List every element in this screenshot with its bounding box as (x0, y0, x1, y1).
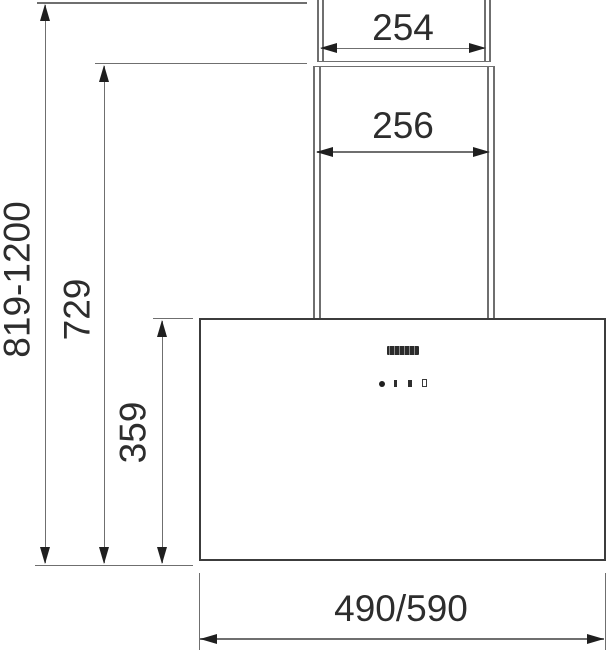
dim-line-body-height (162, 321, 164, 563)
arrowhead-254-left-icon (320, 43, 337, 53)
speed-3-button-icon (422, 379, 427, 387)
power-dot-button-icon (379, 381, 385, 387)
chimney-lower-right-outer-line (493, 66, 495, 319)
dim-line-254 (321, 48, 485, 50)
ext-line-chimney-joint (95, 63, 307, 65)
chimney-upper-right-outer-line (489, 0, 491, 62)
ext-line-body-top (153, 318, 193, 320)
arrowhead-overall-height-bottom-icon (40, 547, 50, 564)
ext-line-body-bottom (35, 565, 193, 567)
arrowhead-body-height-bottom-icon (157, 547, 167, 564)
arrowhead-256-left-icon (316, 147, 333, 157)
dim-line-overall-height (45, 5, 47, 563)
dim-label-254: 254 (363, 9, 443, 46)
dim-label-490-590: 490/590 (301, 590, 501, 627)
dim-label-359: 359 (115, 373, 152, 493)
chimney-upper-left-outer-line (317, 0, 319, 62)
chimney-joint-lower-edge (313, 66, 495, 68)
ext-line-body-width-right (605, 573, 607, 650)
speed-1-button-icon (394, 380, 397, 387)
arrowhead-254-right-icon (469, 43, 486, 53)
arrowhead-body-height-top-icon (157, 320, 167, 337)
dim-label-819-1200: 819-1200 (0, 180, 36, 380)
dim-line-body-width (200, 638, 604, 640)
arrowhead-overall-height-top-icon (40, 4, 50, 21)
chimney-joint-upper-edge (317, 61, 491, 63)
speed-2-button-icon (408, 380, 412, 387)
dimension-drawing-canvas: 254 256 819-1200 729 359 490/590 (0, 0, 610, 650)
chimney-lower-left-outer-line (313, 66, 315, 319)
dim-label-729: 729 (59, 250, 96, 370)
brand-logo-badge (387, 346, 419, 355)
arrowhead-min-height-bottom-icon (99, 547, 109, 564)
ext-line-chimney-top (37, 2, 307, 4)
arrowhead-body-width-right-icon (587, 634, 604, 644)
arrowhead-256-right-icon (473, 147, 490, 157)
chimney-lower-left-inner-line (319, 66, 321, 319)
dim-line-min-height (104, 66, 106, 563)
arrowhead-min-height-top-icon (99, 65, 109, 82)
chimney-lower-right-inner-line (487, 66, 489, 319)
arrowhead-body-width-left-icon (200, 634, 217, 644)
dim-label-256: 256 (363, 107, 443, 144)
dim-line-256 (317, 151, 489, 153)
